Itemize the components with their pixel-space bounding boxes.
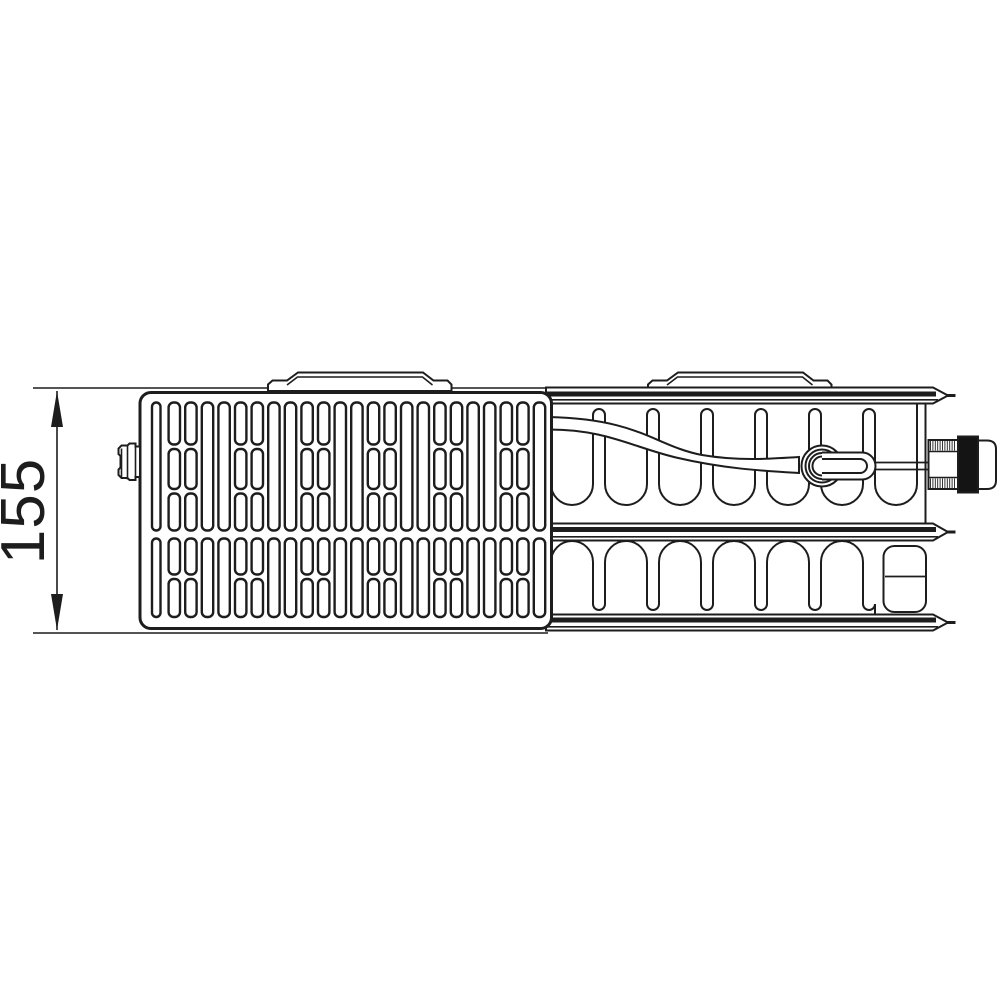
arrowhead-down-icon	[51, 594, 63, 630]
front-grille-panel	[140, 393, 552, 629]
end-fin-bulb	[884, 546, 927, 612]
dimension-label: 155	[0, 458, 58, 564]
drawing-page: 155	[0, 0, 1000, 1000]
radiator-technical-drawing: 155	[0, 0, 1000, 1000]
arrowhead-up-icon	[51, 391, 63, 427]
valve-collar	[958, 437, 978, 493]
valve-body	[929, 437, 997, 493]
valve-tail-pipe	[874, 463, 929, 470]
valve-end-cap	[978, 441, 996, 490]
convector-fins-bottom-row	[551, 541, 926, 615]
valve-supply-pipe	[549, 417, 799, 473]
left-end-plug	[119, 444, 141, 481]
valve-seat-ring	[802, 446, 876, 487]
mounting-bracket-left	[268, 373, 452, 392]
